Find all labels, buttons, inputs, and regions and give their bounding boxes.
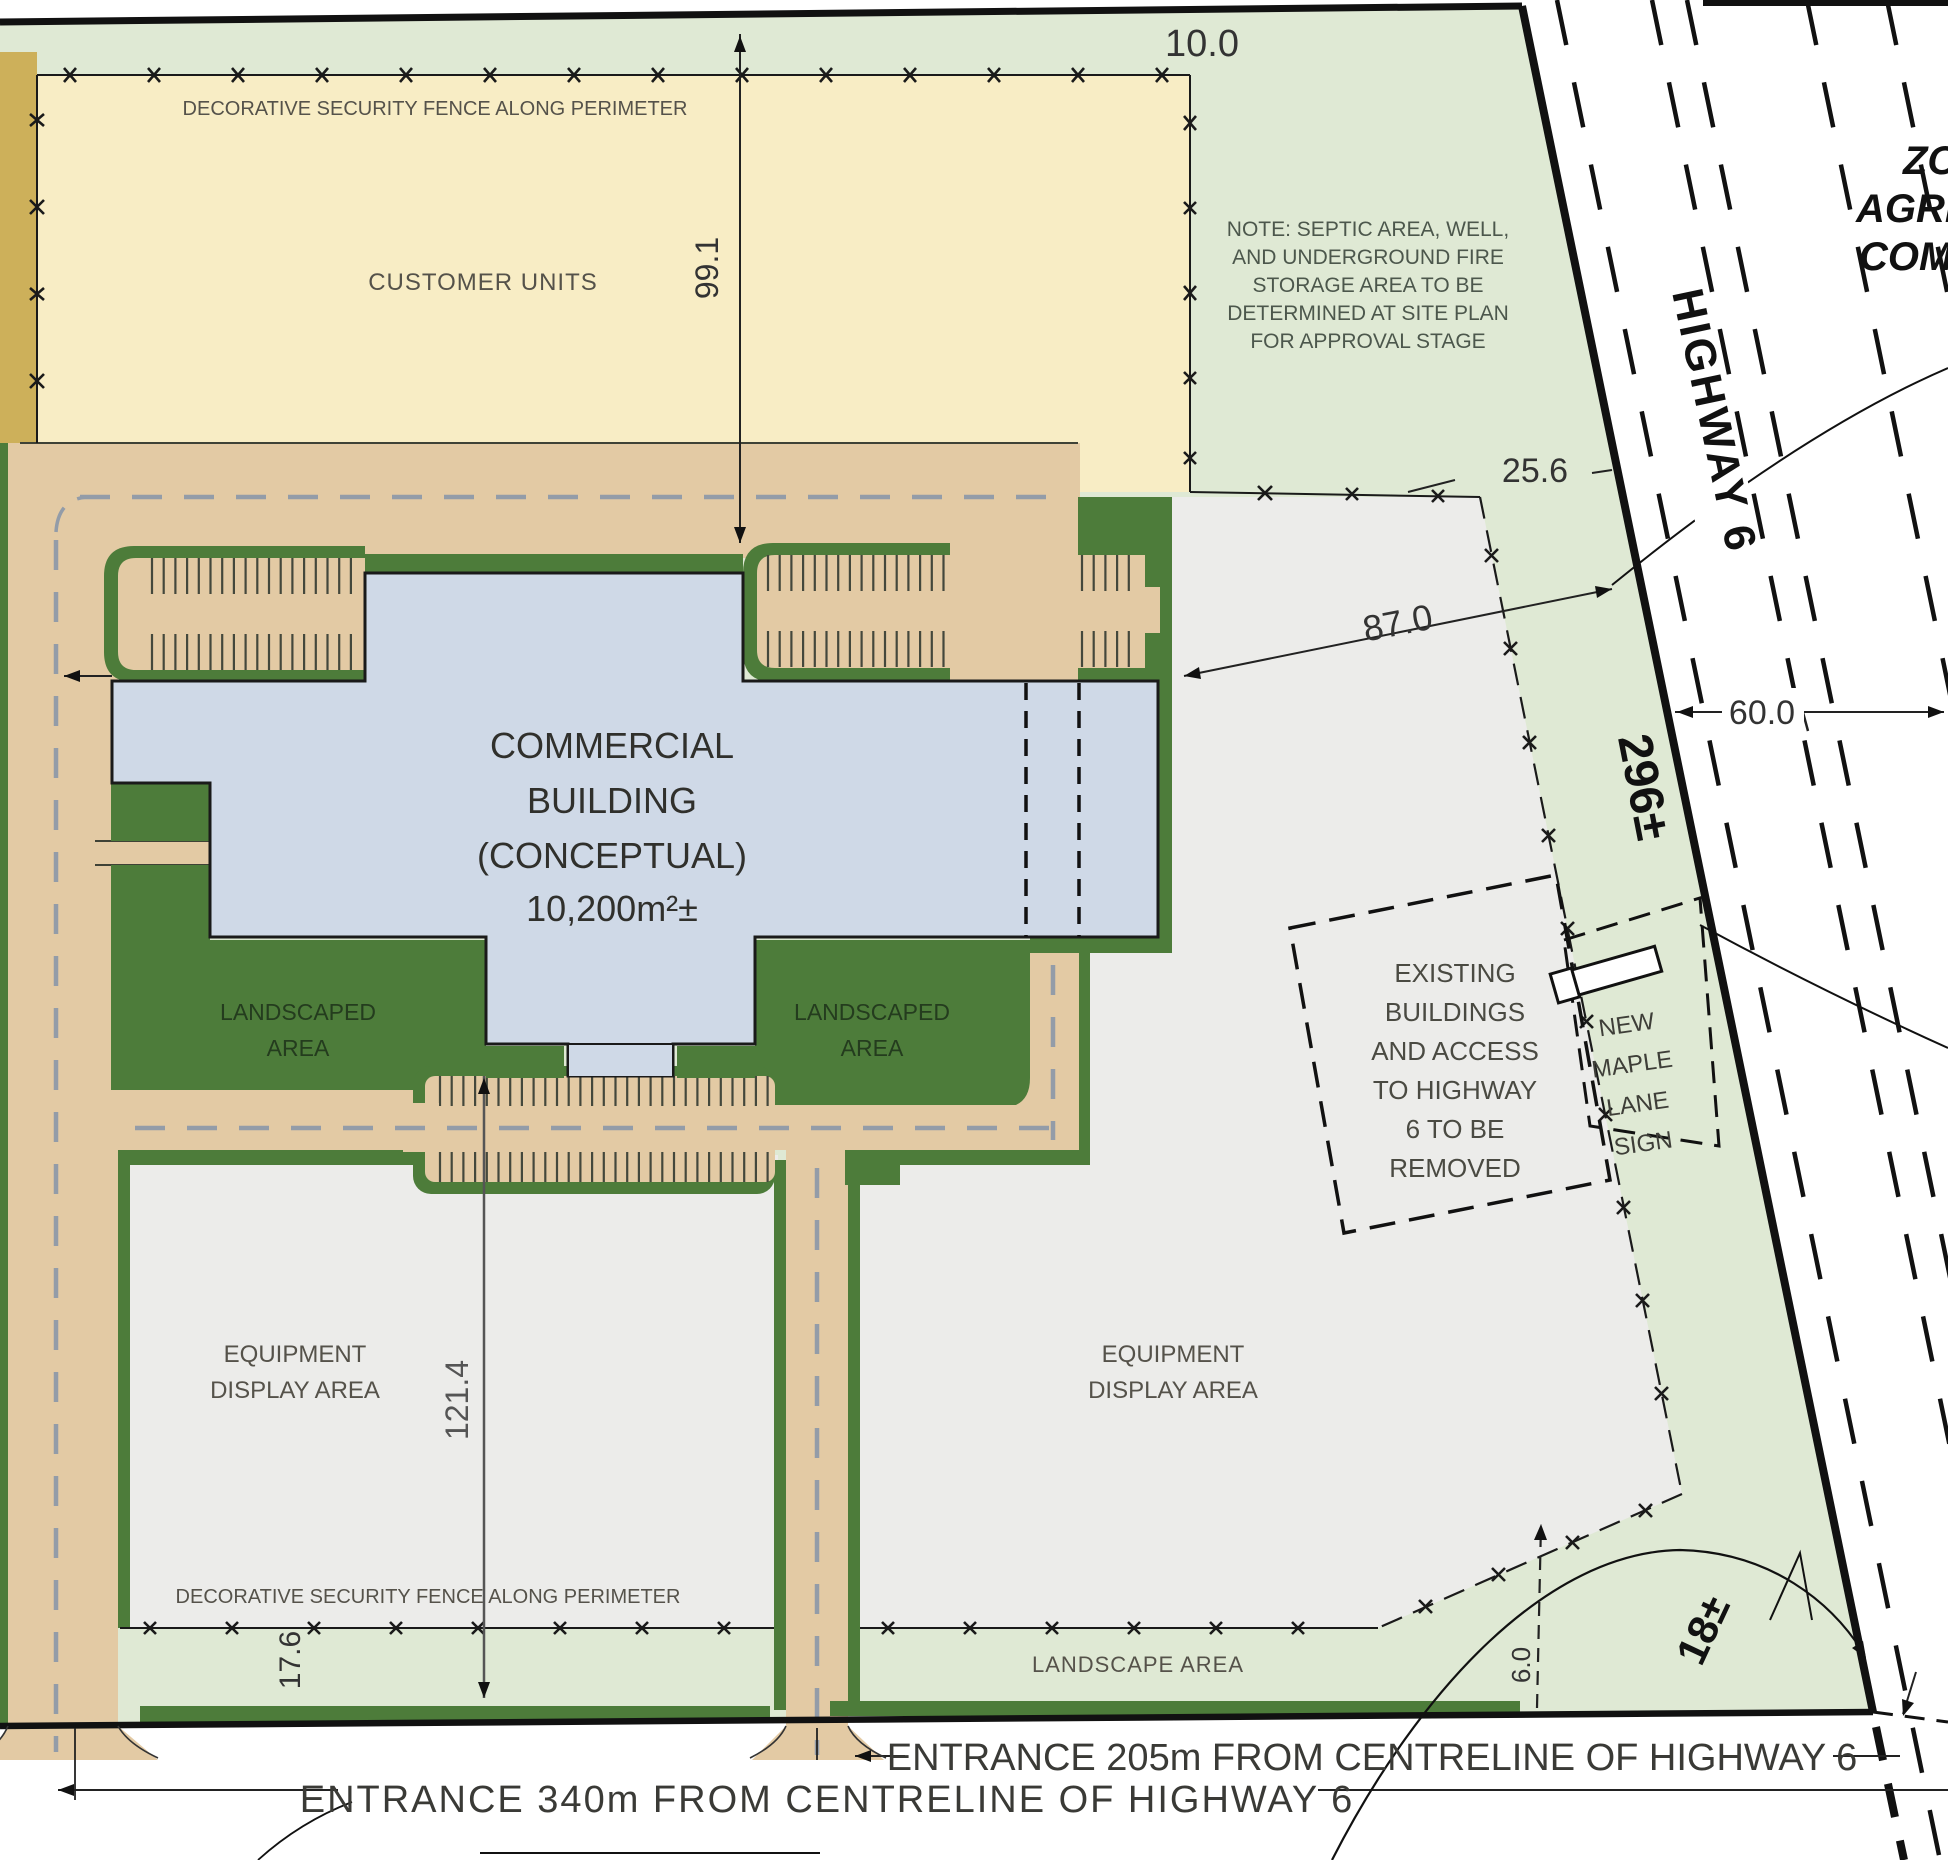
svg-text:121.4: 121.4: [439, 1360, 475, 1440]
svg-text:TO HIGHWAY: TO HIGHWAY: [1373, 1075, 1537, 1105]
svg-text:LANDSCAPED: LANDSCAPED: [794, 999, 950, 1025]
svg-text:STORAGE AREA TO BE: STORAGE AREA TO BE: [1252, 274, 1483, 297]
svg-text:99.1: 99.1: [689, 237, 725, 299]
svg-text:DISPLAY AREA: DISPLAY AREA: [1088, 1377, 1258, 1404]
svg-text:60.0: 60.0: [1729, 694, 1795, 732]
svg-text:17.6: 17.6: [274, 1631, 307, 1689]
svg-text:COMMERCIAL: COMMERCIAL: [1859, 235, 1948, 279]
svg-text:AREA: AREA: [267, 1035, 330, 1061]
svg-text:COMMERCIAL: COMMERCIAL: [490, 725, 734, 766]
svg-text:DISPLAY AREA: DISPLAY AREA: [210, 1377, 380, 1404]
svg-text:REMOVED: REMOVED: [1389, 1153, 1520, 1183]
svg-text:CUSTOMER UNITS: CUSTOMER UNITS: [368, 269, 598, 296]
svg-text:ENTRANCE 205m FROM CENTRELINE: ENTRANCE 205m FROM CENTRELINE OF HIGHWAY…: [887, 1737, 1858, 1779]
svg-text:BUILDING: BUILDING: [527, 780, 697, 821]
svg-text:(CONCEPTUAL): (CONCEPTUAL): [477, 835, 747, 876]
svg-text:AND UNDERGROUND FIRE: AND UNDERGROUND FIRE: [1232, 246, 1504, 269]
svg-text:LANDSCAPE AREA: LANDSCAPE AREA: [1032, 1652, 1244, 1677]
svg-text:BUILDINGS: BUILDINGS: [1385, 997, 1525, 1027]
svg-text:AREA: AREA: [841, 1035, 904, 1061]
svg-text:ZONED: ZONED: [1902, 139, 1948, 183]
svg-text:EQUIPMENT: EQUIPMENT: [1102, 1341, 1245, 1368]
svg-text:DECORATIVE SECURITY FENCE ALON: DECORATIVE SECURITY FENCE ALONG PERIMETE…: [176, 1586, 681, 1608]
svg-text:AND ACCESS: AND ACCESS: [1371, 1036, 1539, 1066]
svg-text:10,200m²±: 10,200m²±: [526, 888, 698, 929]
svg-text:DECORATIVE SECURITY FENCE ALON: DECORATIVE SECURITY FENCE ALONG PERIMETE…: [183, 98, 688, 120]
svg-text:ENTRANCE 340m FROM CENTRELINE: ENTRANCE 340m FROM CENTRELINE OF HIGHWAY…: [300, 1779, 1355, 1821]
svg-text:AGRICULTURAL: AGRICULTURAL: [1855, 187, 1948, 231]
svg-text:10.0: 10.0: [1165, 23, 1239, 65]
svg-text:25.6: 25.6: [1502, 452, 1568, 490]
svg-text:LANDSCAPED: LANDSCAPED: [220, 999, 376, 1025]
svg-text:6.0: 6.0: [1506, 1647, 1536, 1683]
svg-text:DETERMINED AT SITE PLAN: DETERMINED AT SITE PLAN: [1227, 302, 1509, 325]
svg-text:6 TO BE: 6 TO BE: [1406, 1114, 1505, 1144]
svg-text:NOTE: SEPTIC AREA, WELL,: NOTE: SEPTIC AREA, WELL,: [1227, 218, 1509, 241]
svg-text:EQUIPMENT: EQUIPMENT: [224, 1341, 367, 1368]
svg-text:EXISTING: EXISTING: [1394, 958, 1515, 988]
svg-text:FOR APPROVAL STAGE: FOR APPROVAL STAGE: [1250, 330, 1485, 353]
